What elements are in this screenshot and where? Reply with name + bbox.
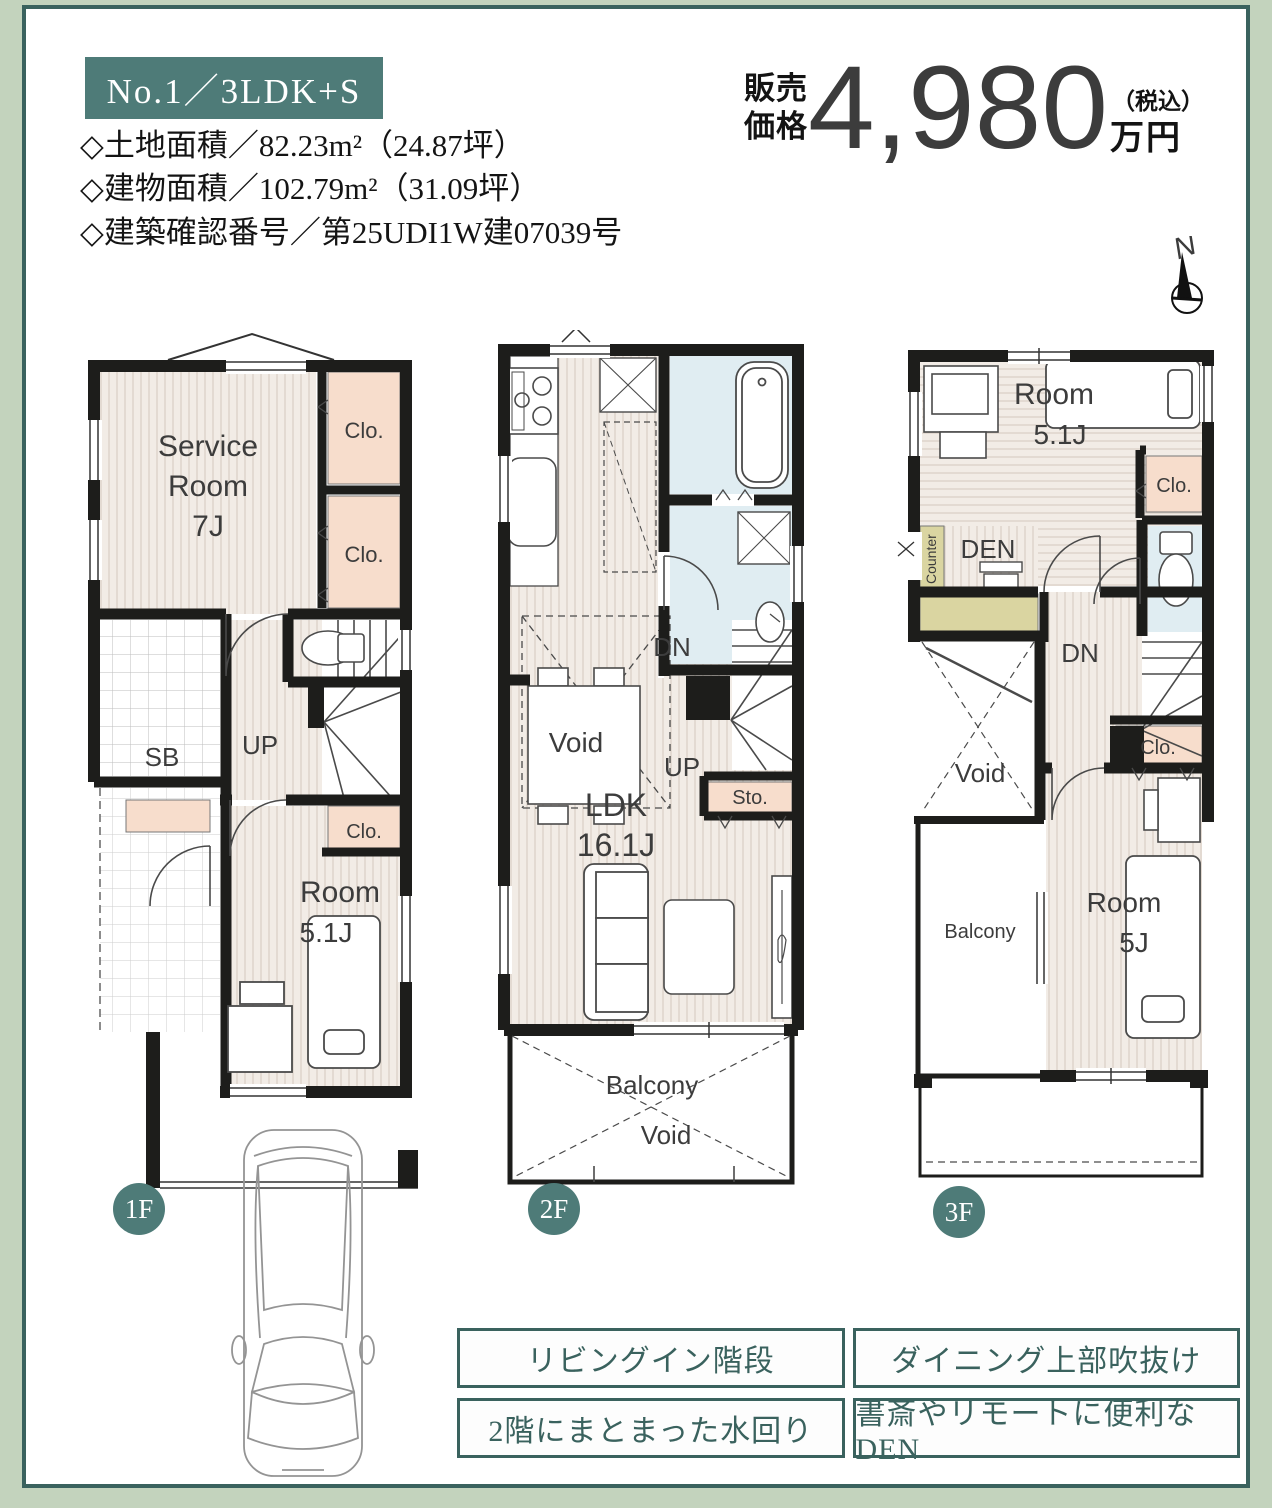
stair-newel-wall <box>686 676 730 720</box>
stairs-up-label: UP <box>242 730 278 760</box>
refrigerator-space <box>600 358 656 412</box>
den-cabinet <box>920 594 1038 632</box>
floor-plan-2f: DN UP Void LDK 16.1J Sto. Balcony Void <box>486 330 816 1200</box>
property-flyer: { "header": { "badge": "No.1／3LDK+S", "s… <box>0 0 1272 1508</box>
feature-living-stairs: リビングイン階段 <box>457 1328 845 1388</box>
closet-label: Clo. <box>346 821 382 843</box>
balcony-2f <box>510 1030 792 1182</box>
room-top-label: Room <box>1014 378 1094 411</box>
plan-number-badge: No.1／3LDK+S <box>85 57 383 119</box>
floor-plan-1f: Service Room 7J Clo. Clo. Clo. SB UP Roo… <box>76 330 424 1485</box>
closet-label: Clo. <box>344 542 383 567</box>
shoe-box <box>126 800 210 832</box>
room-bottom-label: Room <box>1087 887 1162 918</box>
den-label: DEN <box>961 534 1016 564</box>
void-balcony-label: Void <box>641 1120 692 1150</box>
balcony-label: Balcony <box>606 1070 699 1100</box>
coffee-table-icon <box>664 900 734 994</box>
shoe-box-label: SB <box>145 742 180 772</box>
stair-newel-wall <box>308 682 324 728</box>
feature-dining-void: ダイニング上部吹抜け <box>853 1328 1241 1388</box>
price-unit: 万円 <box>1110 110 1182 159</box>
floor-badge-2f: 2F <box>528 1183 580 1235</box>
price-amount: 4,980 <box>802 44 1114 170</box>
feature-list: リビングイン階段 ダイニング上部吹抜け 2階にまとまった水回り 書斎やリモートに… <box>457 1328 1240 1458</box>
room-bottom-label: 5J <box>1119 927 1149 958</box>
stairs-up-label: UP <box>664 752 700 782</box>
stair-newel-wall <box>1110 726 1144 766</box>
price-digits: 4,980 <box>808 44 1108 170</box>
spec-building-area: ◇建物面積／102.79m²（31.09坪） <box>80 167 622 210</box>
closet-label: Clo. <box>1156 475 1192 497</box>
stairs-dn-label: DN <box>1061 638 1099 668</box>
compass-icon: N <box>1156 236 1218 320</box>
roof-outline <box>168 334 334 360</box>
price-label: 販売 価格 <box>744 70 808 146</box>
sofa-icon <box>584 864 648 1020</box>
kitchen-sink-icon <box>508 458 556 546</box>
stove-icon <box>508 368 558 434</box>
service-room-label: Room <box>168 470 248 503</box>
void-label: Void <box>955 758 1006 788</box>
floor-badge-1f: 1F <box>113 1183 165 1235</box>
closet-label: Clo. <box>1140 737 1176 759</box>
shower-icon <box>738 512 790 564</box>
feature-2f-water: 2階にまとまった水回り <box>457 1398 845 1458</box>
floor-plan-3f: Room 5.1J Clo. Counter DEN DN Void Clo. … <box>896 336 1226 1196</box>
spec-confirmation-number: ◇建築確認番号／第25UDI1W建07039号 <box>80 211 622 254</box>
room-top-label: 5.1J <box>1034 419 1087 450</box>
toilet-2f-icon <box>756 602 784 642</box>
service-room-label: Service <box>158 430 258 463</box>
spec-land-area: ◇土地面積／82.23m²（24.87坪） <box>80 124 622 167</box>
den-counter-label: Counter <box>923 534 939 584</box>
stairs-dn-label: DN <box>653 632 691 662</box>
bedroom-label: Room <box>300 876 380 909</box>
feature-den: 書斎やリモートに便利なDEN <box>853 1398 1241 1458</box>
storage-label: Sto. <box>732 787 768 809</box>
toilet-icon <box>302 631 364 665</box>
property-specs: ◇土地面積／82.23m²（24.87坪） ◇建物面積／102.79m²（31.… <box>80 124 622 254</box>
void-dining-label: Void <box>549 727 604 758</box>
compass-n-label: N <box>1169 236 1201 266</box>
service-room-label: 7J <box>192 510 224 543</box>
ldk-label: LDK <box>585 787 647 823</box>
closet-label: Clo. <box>344 418 383 443</box>
bathtub-icon <box>736 362 788 488</box>
ldk-label: 16.1J <box>577 827 655 863</box>
bedroom-label: 5.1J <box>300 917 353 948</box>
tv-board-icon <box>772 876 792 1018</box>
balcony-label: Balcony <box>944 921 1015 943</box>
floor-badge-3f: 3F <box>933 1186 985 1238</box>
